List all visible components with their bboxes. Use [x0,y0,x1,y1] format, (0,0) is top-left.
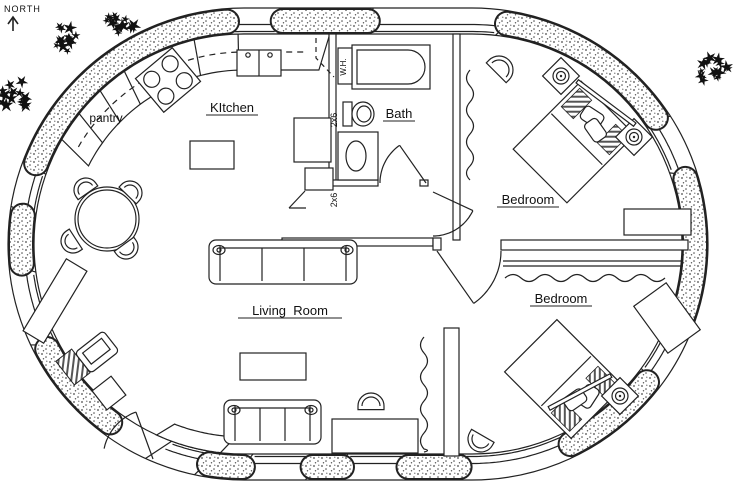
bathtub [352,45,430,89]
tree-icon [103,12,142,37]
kitchen-cabinet [305,168,333,190]
desk [332,419,418,453]
room-label-pantry: pantry [89,111,122,125]
closet-rod-wavy-line [505,275,665,282]
note-water-heater: W.H. [339,58,348,75]
tree-icon [0,76,32,112]
bath-bedroom-wall [453,34,460,240]
bathroom-vanity [338,132,378,180]
coffee-table [240,353,306,380]
bedroom2-door [437,251,501,303]
svg-text:KItchen: KItchen [210,100,254,115]
svg-text:Bath: Bath [386,106,413,121]
svg-text:2x6: 2x6 [329,113,339,128]
room-label-bath: Bath [383,106,415,121]
chair [486,50,518,82]
svg-text:Living Room: Living Room [252,303,328,318]
note-2x6-wall: 2x6 [329,193,339,208]
stippled-wall-segment [21,216,23,264]
cabinet-door-swing [289,191,305,208]
kitchen-island [190,141,234,169]
tree-icon [53,21,80,55]
bedroom-divider-wall [501,240,688,250]
tree-icon [695,51,733,86]
chair [463,429,494,456]
dresser [624,209,691,235]
svg-text:pantry: pantry [89,111,122,125]
closet-rod-wavy-line [421,337,428,452]
bed [513,81,635,203]
svg-text:2x6: 2x6 [329,193,339,208]
svg-text:Bedroom: Bedroom [502,192,555,207]
sofa [209,240,357,284]
kitchen-sink [237,50,281,76]
bath-door [380,145,426,183]
hall-cap [433,238,441,250]
desk-chair [358,393,384,410]
room-label-living-room: Living Room [238,303,342,318]
note-2x6-wall: 2x6 [329,113,339,128]
svg-text:Bedroom: Bedroom [535,291,588,306]
bath-south-wall [332,180,378,186]
room-label-bedroom-1: Bedroom [497,192,559,207]
refrigerator [294,118,331,162]
floor-plan: NORTH KItchenpantryBathBedroomBedroomLiv… [0,0,736,487]
closet-rod-wavy-line [467,70,474,180]
stippled-wall-segment [209,464,243,467]
stippled-wall-segment [680,179,695,325]
closet-wall-lines [503,261,683,266]
toilet [343,102,374,126]
sofa [224,400,321,444]
north-label: NORTH [4,4,41,14]
north-arrow-icon [8,17,18,31]
living-bedroom-wall [444,328,459,456]
room-label-bedroom-2: Bedroom [530,291,592,306]
svg-text:W.H.: W.H. [339,58,348,75]
floor-plan-canvas: NORTH KItchenpantryBathBedroomBedroomLiv… [0,0,736,487]
room-label-kitchen: KItchen [206,100,258,115]
